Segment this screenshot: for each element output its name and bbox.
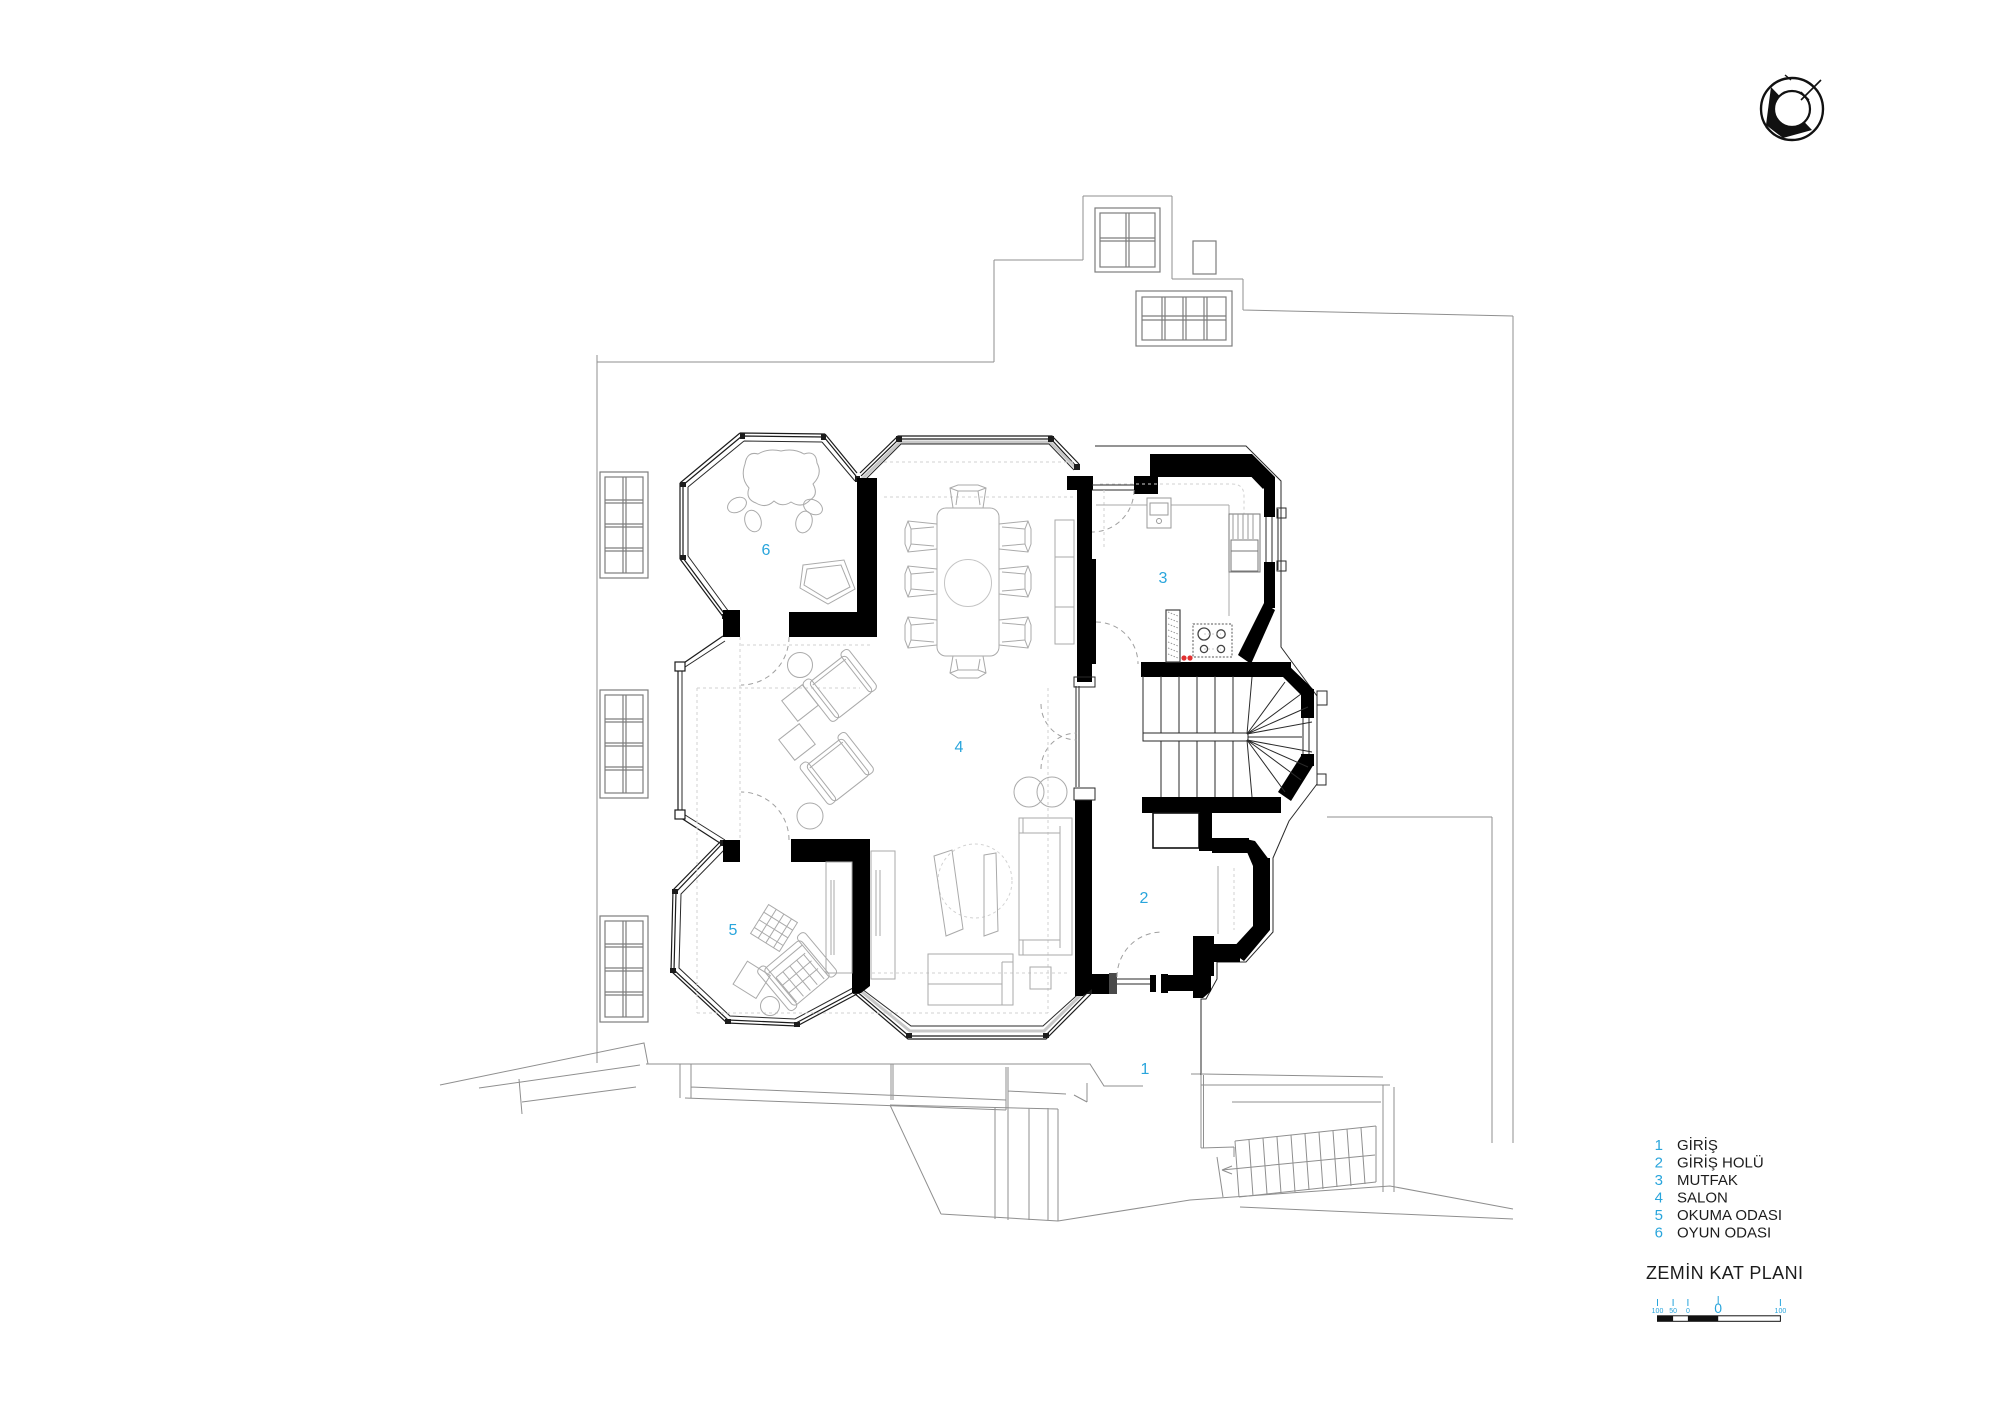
svg-text:5: 5: [1655, 1207, 1663, 1224]
svg-text:2: 2: [1140, 890, 1149, 907]
svg-text:100: 100: [1775, 1308, 1787, 1315]
svg-text:3: 3: [1159, 570, 1168, 587]
svg-text:6: 6: [1655, 1225, 1663, 1242]
svg-text:100: 100: [1652, 1308, 1664, 1315]
svg-text:GİRİŞ HOLÜ: GİRİŞ HOLÜ: [1677, 1154, 1764, 1172]
svg-text:MUTFAK: MUTFAK: [1677, 1172, 1738, 1189]
svg-text:5: 5: [729, 922, 738, 939]
svg-text:OKUMA ODASI: OKUMA ODASI: [1677, 1207, 1782, 1224]
svg-text:4: 4: [955, 739, 964, 756]
svg-text:GİRİŞ: GİRİŞ: [1677, 1136, 1718, 1154]
svg-text:1: 1: [1141, 1061, 1150, 1078]
svg-text:0: 0: [1686, 1308, 1690, 1315]
svg-text:0: 0: [1714, 1300, 1722, 1316]
svg-text:ZEMİN KAT PLANI: ZEMİN KAT PLANI: [1646, 1263, 1803, 1283]
svg-text:2: 2: [1655, 1155, 1663, 1172]
svg-text:1: 1: [1655, 1137, 1663, 1154]
svg-text:3: 3: [1655, 1172, 1663, 1189]
svg-text:OYUN ODASI: OYUN ODASI: [1677, 1225, 1771, 1242]
svg-text:50: 50: [1669, 1308, 1677, 1315]
svg-text:4: 4: [1655, 1190, 1663, 1207]
svg-text:SALON: SALON: [1677, 1190, 1728, 1207]
svg-text:6: 6: [762, 542, 771, 559]
